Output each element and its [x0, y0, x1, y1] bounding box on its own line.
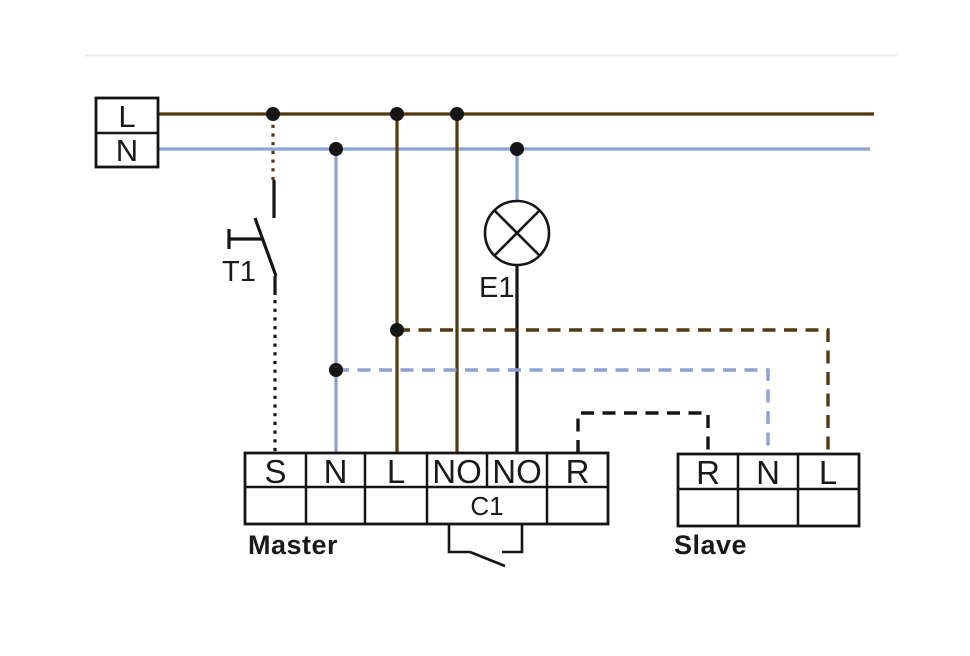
relay-label: C1 — [470, 491, 503, 521]
slave-terminal-l: L — [819, 454, 837, 491]
junction-dot — [390, 323, 404, 337]
supply-box: L N — [96, 98, 158, 168]
relay-contact-left-pin — [449, 524, 470, 552]
junction-dot — [266, 107, 280, 121]
slave-caption: Slave — [674, 530, 747, 560]
relay-contact-right-pin — [502, 524, 522, 552]
slave-terminal-r: R — [696, 454, 720, 491]
switch-blade — [255, 218, 276, 276]
supply-live-label: L — [118, 99, 135, 134]
master-terminal-r: R — [566, 453, 590, 490]
wiring-diagram: T1 L N E1 — [0, 0, 970, 656]
junction-dot — [450, 107, 464, 121]
master-terminal-no1: NO — [432, 453, 482, 490]
master-terminal-block: S N L NO NO R C1 — [245, 453, 608, 524]
relay-contact-symbol — [449, 524, 522, 566]
relay-contact-blade — [470, 552, 505, 566]
master-r-to-slave-r-dashed-wire — [578, 413, 708, 456]
master-terminal-l: L — [387, 453, 405, 490]
junction-dot — [329, 363, 343, 377]
master-terminal-n: N — [324, 453, 348, 490]
supply-neutral-label: N — [116, 133, 138, 168]
master-terminal-no2: NO — [492, 453, 542, 490]
lamp-symbol — [485, 201, 549, 265]
master-l-to-slave-l-dashed-wire — [397, 330, 828, 456]
slave-terminal-block: R N L — [678, 454, 859, 526]
junction-dot — [510, 142, 524, 156]
junction-dot — [390, 107, 404, 121]
lamp-label: E1 — [479, 272, 514, 304]
switch-label: T1 — [222, 256, 256, 288]
master-caption: Master — [248, 530, 338, 560]
master-terminal-s: S — [264, 453, 286, 490]
slave-terminal-n: N — [756, 454, 780, 491]
master-n-to-slave-n-dashed-wire — [336, 370, 768, 456]
junction-dot — [329, 142, 343, 156]
